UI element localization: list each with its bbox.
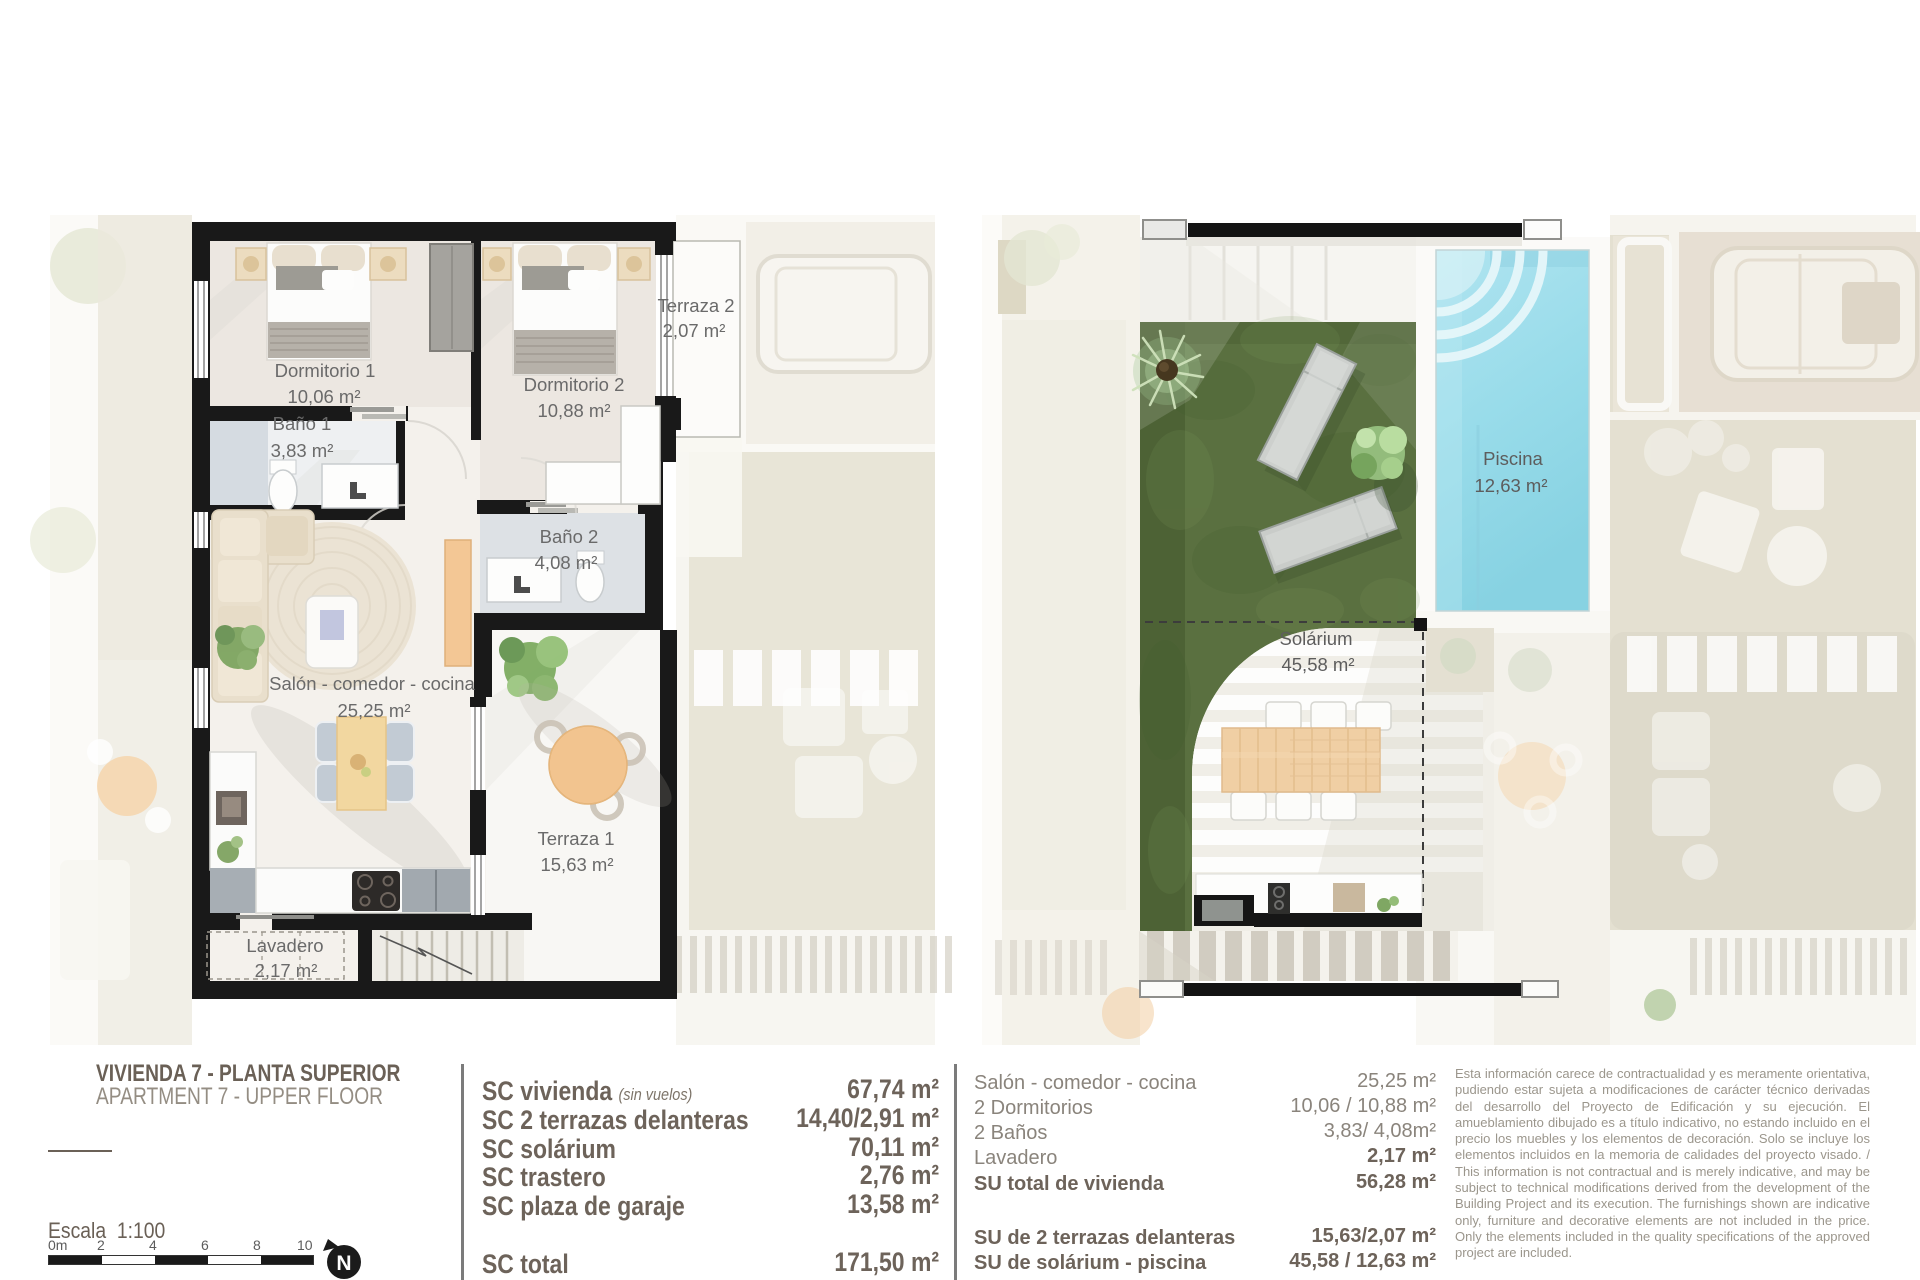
svg-text:Terraza 2: Terraza 2 xyxy=(657,295,734,316)
svg-text:Baño 1: Baño 1 xyxy=(273,413,332,434)
svg-text:10,88 m²: 10,88 m² xyxy=(537,400,610,421)
svg-text:Terraza 1: Terraza 1 xyxy=(537,828,614,849)
svg-text:Lavadero: Lavadero xyxy=(246,935,323,956)
svg-text:12,63 m²: 12,63 m² xyxy=(1474,475,1547,496)
svg-text:10,06 m²: 10,06 m² xyxy=(287,386,360,407)
svg-text:Solárium: Solárium xyxy=(1280,628,1353,649)
svg-text:Baño 2: Baño 2 xyxy=(540,526,599,547)
svg-text:2,07 m²: 2,07 m² xyxy=(663,320,726,341)
svg-text:Piscina: Piscina xyxy=(1483,448,1543,469)
svg-text:N: N xyxy=(336,1252,351,1275)
svg-text:4,08 m²: 4,08 m² xyxy=(535,552,598,573)
svg-text:Dormitorio 1: Dormitorio 1 xyxy=(275,360,376,381)
svg-text:45,58 m²: 45,58 m² xyxy=(1281,654,1354,675)
svg-text:25,25 m²: 25,25 m² xyxy=(337,700,410,721)
svg-text:Salón - comedor - cocina: Salón - comedor - cocina xyxy=(269,673,475,694)
svg-text:15,63 m²: 15,63 m² xyxy=(540,854,613,875)
svg-text:3,83 m²: 3,83 m² xyxy=(271,440,334,461)
svg-text:Dormitorio 2: Dormitorio 2 xyxy=(524,374,625,395)
svg-text:2,17 m²: 2,17 m² xyxy=(255,960,318,981)
